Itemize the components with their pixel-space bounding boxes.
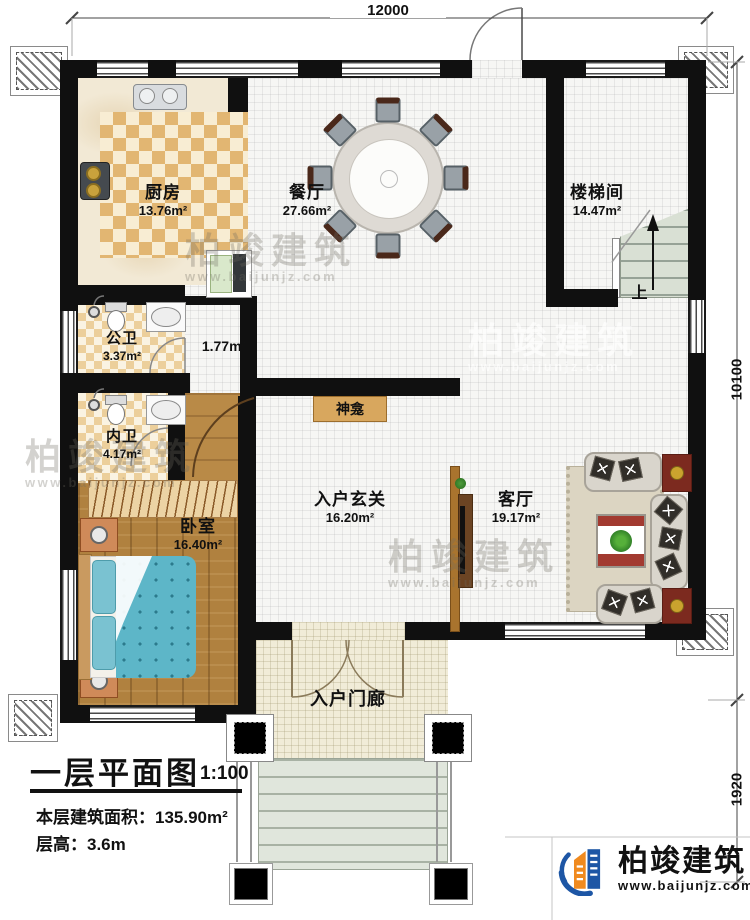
- porch-column: [434, 868, 468, 900]
- porch-rail: [436, 762, 452, 862]
- wall: [645, 622, 706, 640]
- toilet: [107, 403, 125, 425]
- wash-basin: [151, 400, 181, 420]
- wall: [60, 373, 78, 570]
- window: [342, 60, 440, 78]
- plant: [610, 530, 632, 552]
- wall: [522, 60, 586, 78]
- wall: [256, 622, 292, 640]
- shower-head: [88, 306, 100, 318]
- porch-column: [424, 714, 472, 762]
- wall: [688, 60, 706, 300]
- wall: [546, 78, 564, 296]
- entry-steps: [258, 758, 448, 870]
- page-title: 一层平面图: [30, 748, 200, 793]
- room-label-kitchen: 厨房 13.76m²: [139, 182, 187, 220]
- wall: [298, 60, 342, 78]
- tv-screen: [460, 506, 465, 574]
- window: [586, 60, 665, 78]
- room-label-stairwell: 楼梯间 14.47m²: [570, 182, 624, 220]
- brand-name: 柏竣建筑: [618, 845, 750, 878]
- appliance: [210, 255, 232, 293]
- side-table-lamp: [670, 599, 684, 613]
- dining-chair: [376, 98, 401, 123]
- hatched-column: [8, 694, 58, 742]
- wall: [148, 60, 176, 78]
- wall: [228, 78, 248, 112]
- wall: [238, 396, 256, 723]
- wash-basin: [151, 307, 181, 327]
- room-label-foyer: 入户玄关 16.20m²: [314, 489, 386, 527]
- brand-logo-icon: [556, 842, 610, 896]
- porch-door-opening: [292, 622, 405, 640]
- title-rule: [30, 789, 242, 793]
- dining-chair: [376, 234, 401, 259]
- pillow: [92, 616, 116, 670]
- table-center: [380, 170, 398, 188]
- window: [688, 300, 706, 353]
- dim-right-main: 10100: [730, 340, 745, 420]
- brand-website: www.baijunjz.com: [618, 878, 750, 893]
- window: [60, 311, 78, 373]
- brand-logo: 柏竣建筑 www.baijunjz.com: [556, 842, 750, 896]
- shrine-cabinet: 神龛: [313, 396, 387, 422]
- room-label-public-bath: 公卫 3.37m²: [103, 330, 141, 364]
- porch-column: [226, 714, 274, 762]
- toilet: [107, 310, 125, 332]
- window: [176, 60, 298, 78]
- window: [90, 705, 195, 723]
- floor-height-line: 层高：3.6m: [36, 830, 126, 855]
- wall: [546, 289, 618, 307]
- dim-top: 12000: [330, 3, 446, 18]
- burner: [86, 183, 101, 198]
- top-door-opening: [472, 60, 522, 78]
- room-label-bedroom: 卧室 16.40m²: [174, 516, 222, 554]
- wall: [440, 60, 472, 78]
- wall: [60, 705, 90, 723]
- wall: [240, 378, 460, 396]
- wardrobe: [88, 480, 238, 518]
- shrine-label: 神龛: [336, 399, 364, 419]
- dim-right-porch: 1920: [730, 750, 745, 830]
- room-label-dining: 餐厅 27.66m²: [283, 182, 331, 220]
- window: [60, 570, 78, 660]
- room-label-living: 客厅 19.17m²: [492, 489, 540, 527]
- floor-plan-canvas: 神龛: [0, 0, 750, 920]
- small-plant: [455, 478, 466, 489]
- shower-head: [88, 399, 100, 411]
- sink-bowl: [162, 88, 178, 104]
- lamp: [90, 526, 108, 544]
- wall: [60, 60, 78, 311]
- area-label-corridor: 1.77m²: [202, 338, 246, 356]
- fridge: [233, 254, 246, 292]
- wall: [60, 373, 190, 393]
- stairs-up-label: 上: [631, 284, 648, 304]
- burner: [86, 166, 101, 181]
- window: [97, 60, 148, 78]
- pillow: [92, 560, 116, 614]
- drawing-scale: 1:100: [200, 763, 249, 785]
- room-label-private-bath: 内卫 4.17m²: [103, 428, 141, 462]
- window: [505, 622, 645, 640]
- room-label-porch: 入户门廊: [310, 688, 386, 711]
- dining-chair: [444, 166, 469, 191]
- cushion: [618, 457, 643, 482]
- sink-bowl: [139, 88, 155, 104]
- porch-column: [234, 868, 268, 900]
- side-table-lamp: [670, 466, 684, 480]
- building-area-line: 本层建筑面积：135.90m²: [36, 803, 228, 828]
- cushion: [658, 526, 682, 550]
